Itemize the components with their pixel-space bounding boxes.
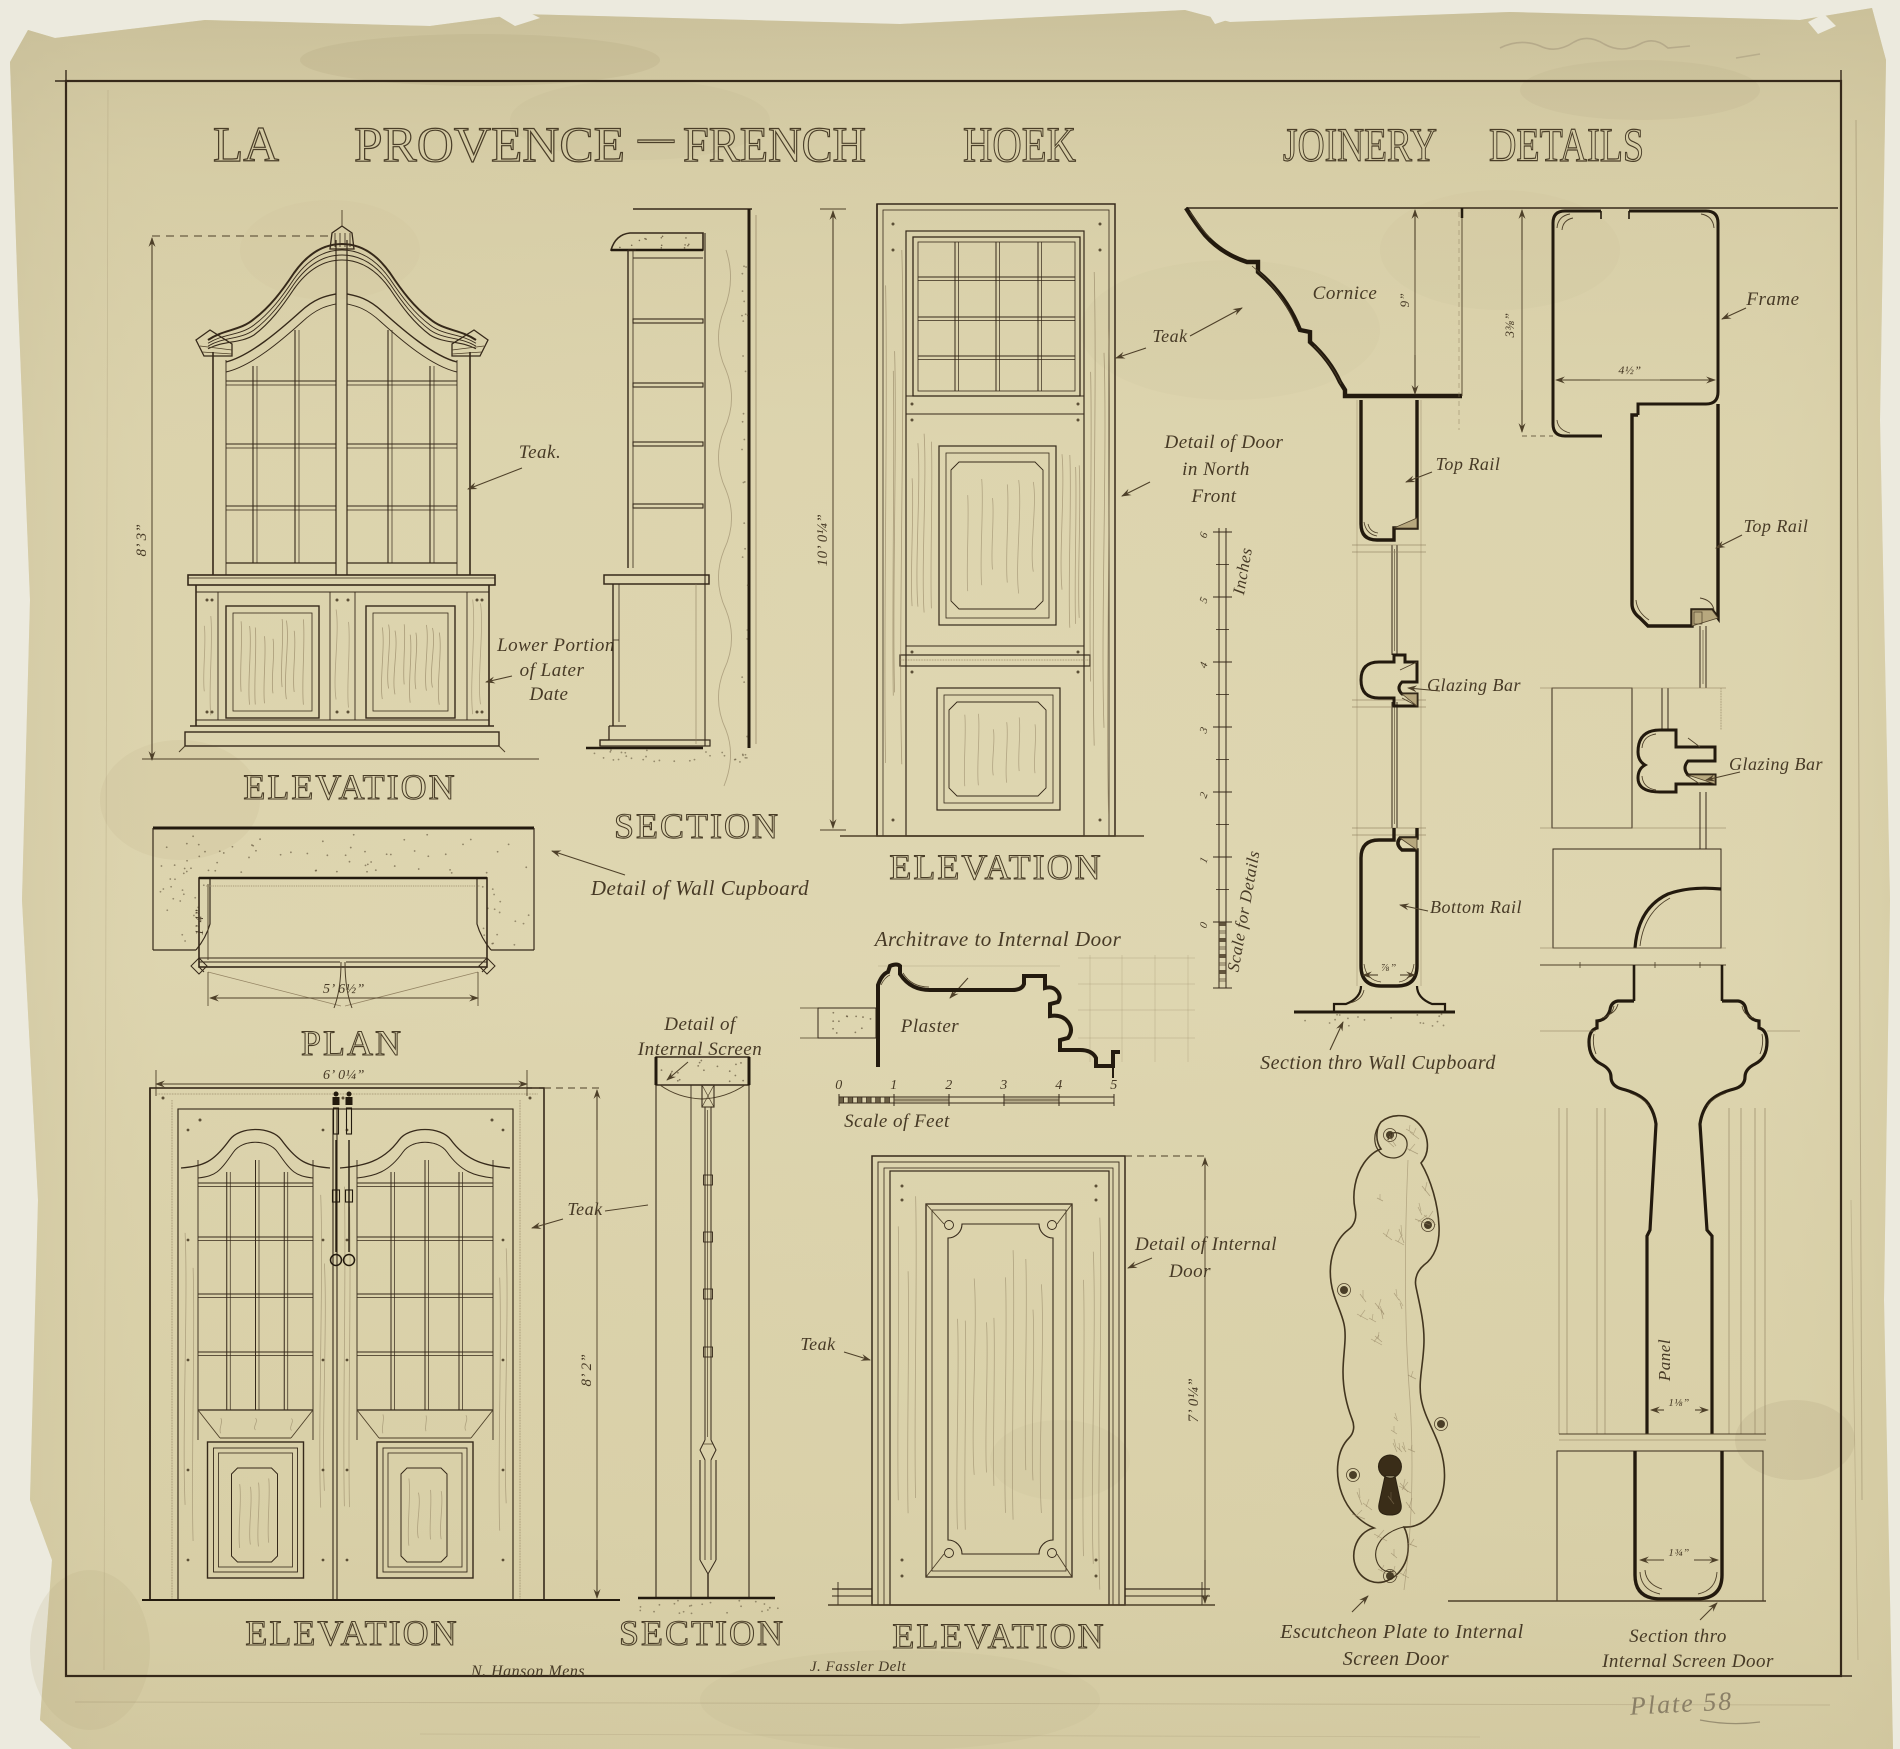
- svg-text:—: —: [637, 108, 674, 164]
- svg-text:Cornice: Cornice: [1313, 283, 1378, 304]
- svg-text:3⅜”: 3⅜”: [1502, 313, 1517, 339]
- svg-text:Teak: Teak: [1152, 326, 1188, 346]
- svg-text:Top Rail: Top Rail: [1436, 454, 1501, 474]
- svg-text:Lower Portion: Lower Portion: [496, 635, 615, 656]
- svg-text:8’ 2”: 8’ 2”: [579, 1354, 595, 1387]
- svg-text:Teak: Teak: [567, 1199, 603, 1219]
- svg-text:Section thro: Section thro: [1629, 1626, 1727, 1647]
- svg-text:1’ 4”: 1’ 4”: [192, 909, 206, 936]
- svg-text:Detail of Internal: Detail of Internal: [1134, 1234, 1277, 1255]
- svg-text:Glazing Bar: Glazing Bar: [1729, 754, 1824, 774]
- svg-text:Internal Screen Door: Internal Screen Door: [1601, 1651, 1774, 1672]
- svg-text:9”: 9”: [1397, 293, 1412, 308]
- svg-text:1⅛”: 1⅛”: [1668, 1397, 1689, 1409]
- svg-text:Screen Door: Screen Door: [1343, 1648, 1449, 1670]
- svg-text:5’ 6½”: 5’ 6½”: [323, 982, 365, 997]
- svg-text:4½”: 4½”: [1618, 363, 1641, 377]
- svg-text:ELEVATION: ELEVATION: [245, 1613, 458, 1653]
- svg-text:PROVENCE: PROVENCE: [354, 116, 625, 172]
- svg-text:Glazing Bar: Glazing Bar: [1427, 675, 1522, 695]
- svg-text:SECTION: SECTION: [619, 1613, 785, 1653]
- svg-text:Panel: Panel: [1655, 1339, 1674, 1382]
- svg-text:Bottom Rail: Bottom Rail: [1430, 897, 1522, 917]
- svg-text:Top Rail: Top Rail: [1744, 516, 1809, 536]
- svg-text:Escutcheon Plate to Internal: Escutcheon Plate to Internal: [1279, 1621, 1523, 1643]
- svg-text:1¾”: 1¾”: [1668, 1547, 1689, 1559]
- svg-text:J. Fassler Delt: J. Fassler Delt: [810, 1659, 907, 1675]
- svg-text:Plaster: Plaster: [900, 1016, 959, 1037]
- svg-text:Plate 58: Plate 58: [1628, 1686, 1734, 1720]
- svg-text:6’ 0¼”: 6’ 0¼”: [323, 1068, 365, 1083]
- svg-text:Scale of Feet: Scale of Feet: [844, 1111, 950, 1132]
- svg-text:10’ 0¼”: 10’ 0¼”: [815, 514, 831, 567]
- svg-text:5: 5: [1110, 1078, 1118, 1093]
- svg-text:FRENCH: FRENCH: [683, 116, 866, 172]
- svg-text:0: 0: [835, 1078, 843, 1093]
- svg-text:Date: Date: [529, 684, 569, 705]
- svg-text:SECTION: SECTION: [614, 806, 780, 846]
- svg-text:Detail of Wall Cupboard: Detail of Wall Cupboard: [590, 876, 809, 900]
- svg-text:ELEVATION: ELEVATION: [892, 1616, 1105, 1656]
- svg-text:Detail of Door: Detail of Door: [1164, 432, 1284, 453]
- svg-text:ELEVATION: ELEVATION: [243, 767, 456, 807]
- svg-text:Internal Screen: Internal Screen: [637, 1039, 762, 1060]
- svg-text:Detail of: Detail of: [663, 1014, 738, 1035]
- svg-text:1: 1: [890, 1078, 898, 1093]
- svg-text:HOEK: HOEK: [963, 116, 1076, 172]
- svg-text:LA: LA: [213, 116, 279, 172]
- svg-text:7’ 0¼”: 7’ 0¼”: [1186, 1378, 1202, 1423]
- svg-text:JOINERY: JOINERY: [1283, 119, 1437, 172]
- svg-text:Teak: Teak: [800, 1334, 836, 1354]
- svg-text:Section thro Wall Cupboard: Section thro Wall Cupboard: [1260, 1052, 1496, 1074]
- svg-text:N. Hanson Mens: N. Hanson Mens: [470, 1663, 585, 1680]
- svg-text:Door: Door: [1168, 1261, 1211, 1282]
- svg-text:Front: Front: [1190, 486, 1236, 507]
- svg-text:Architrave to Internal Door: Architrave to Internal Door: [873, 927, 1122, 951]
- svg-text:in North: in North: [1182, 459, 1250, 480]
- svg-text:⅞”: ⅞”: [1381, 962, 1396, 974]
- svg-text:ELEVATION: ELEVATION: [889, 847, 1102, 887]
- svg-text:2: 2: [945, 1078, 953, 1093]
- svg-text:8’ 3”: 8’ 3”: [134, 524, 150, 557]
- svg-text:of Later: of Later: [520, 660, 585, 681]
- svg-text:4: 4: [1055, 1078, 1063, 1093]
- svg-text:DETAILS: DETAILS: [1489, 119, 1644, 172]
- svg-text:3: 3: [999, 1078, 1008, 1093]
- svg-text:Teak.: Teak.: [519, 442, 561, 463]
- svg-text:PLAN: PLAN: [301, 1023, 403, 1063]
- svg-text:Frame: Frame: [1745, 289, 1799, 310]
